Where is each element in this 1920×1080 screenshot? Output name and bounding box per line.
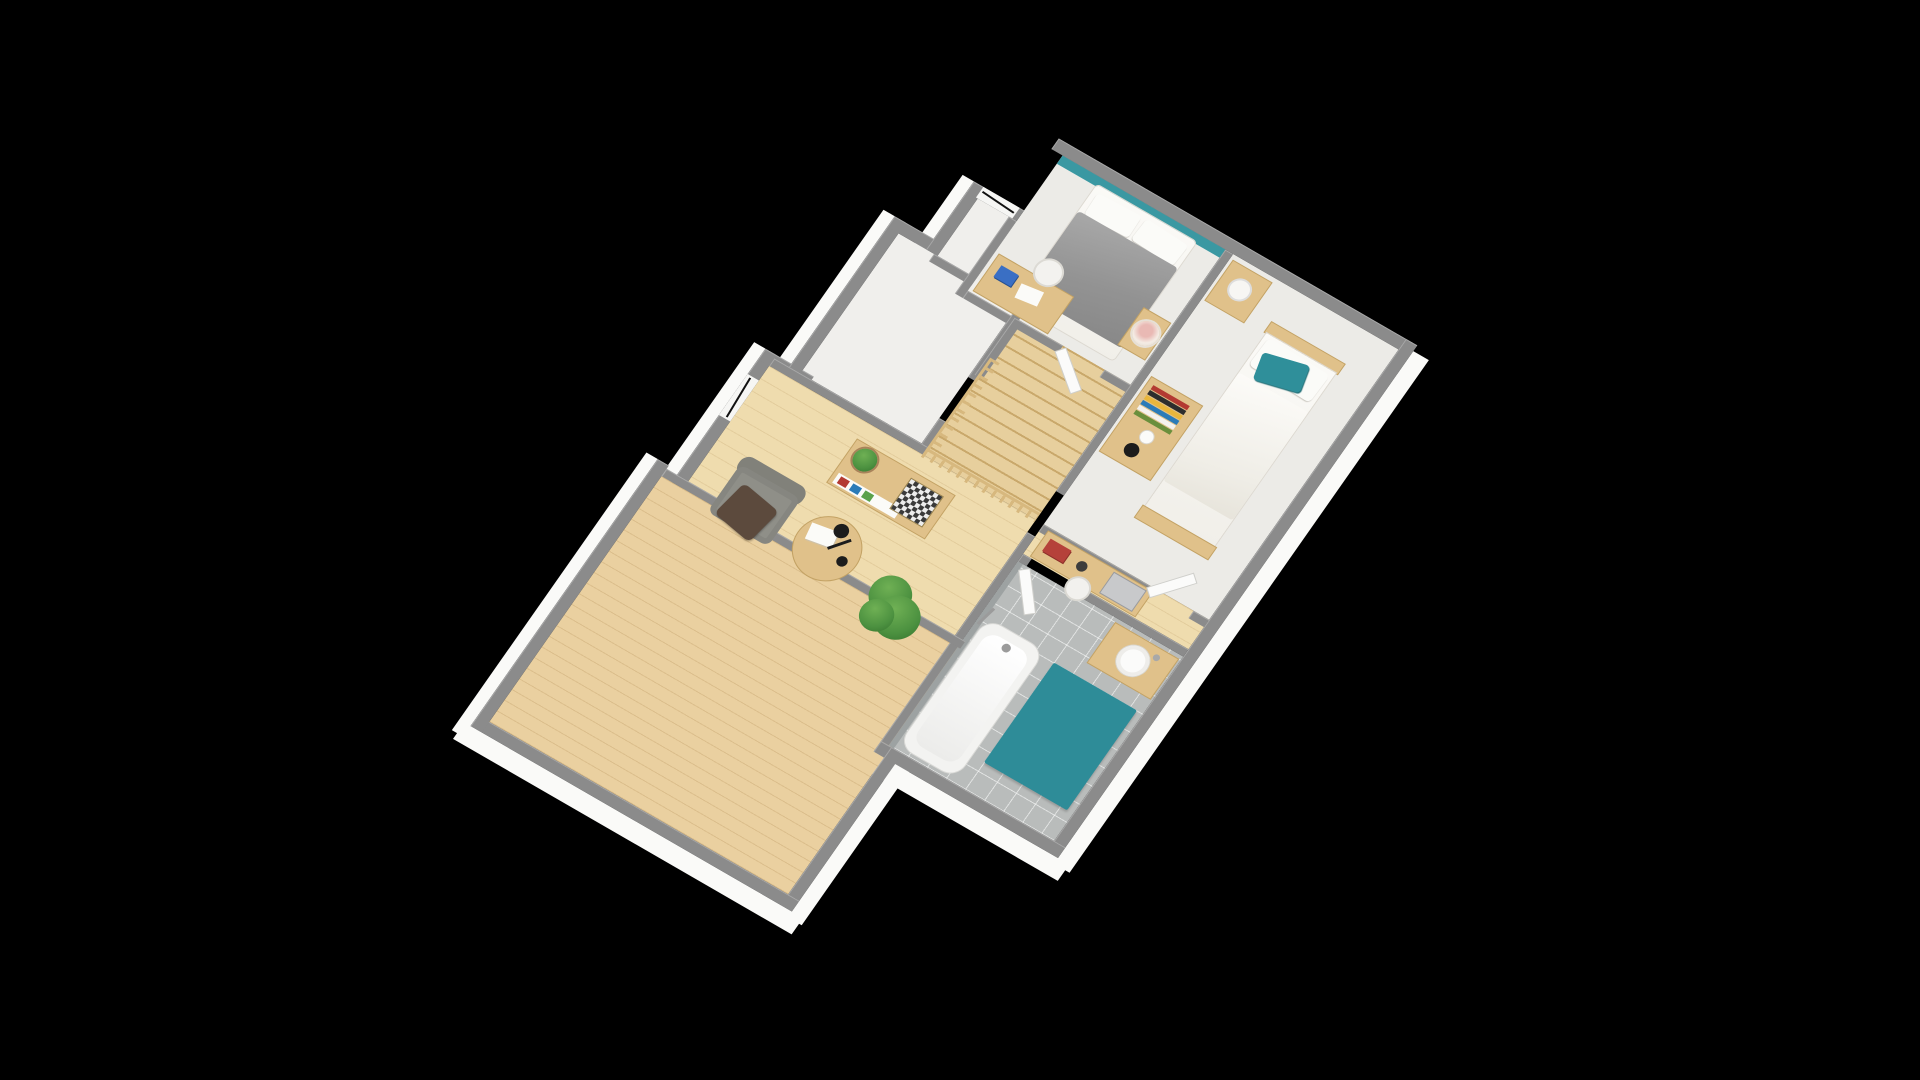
floor-plan xyxy=(466,83,1449,1051)
render-stage xyxy=(0,0,1920,1080)
